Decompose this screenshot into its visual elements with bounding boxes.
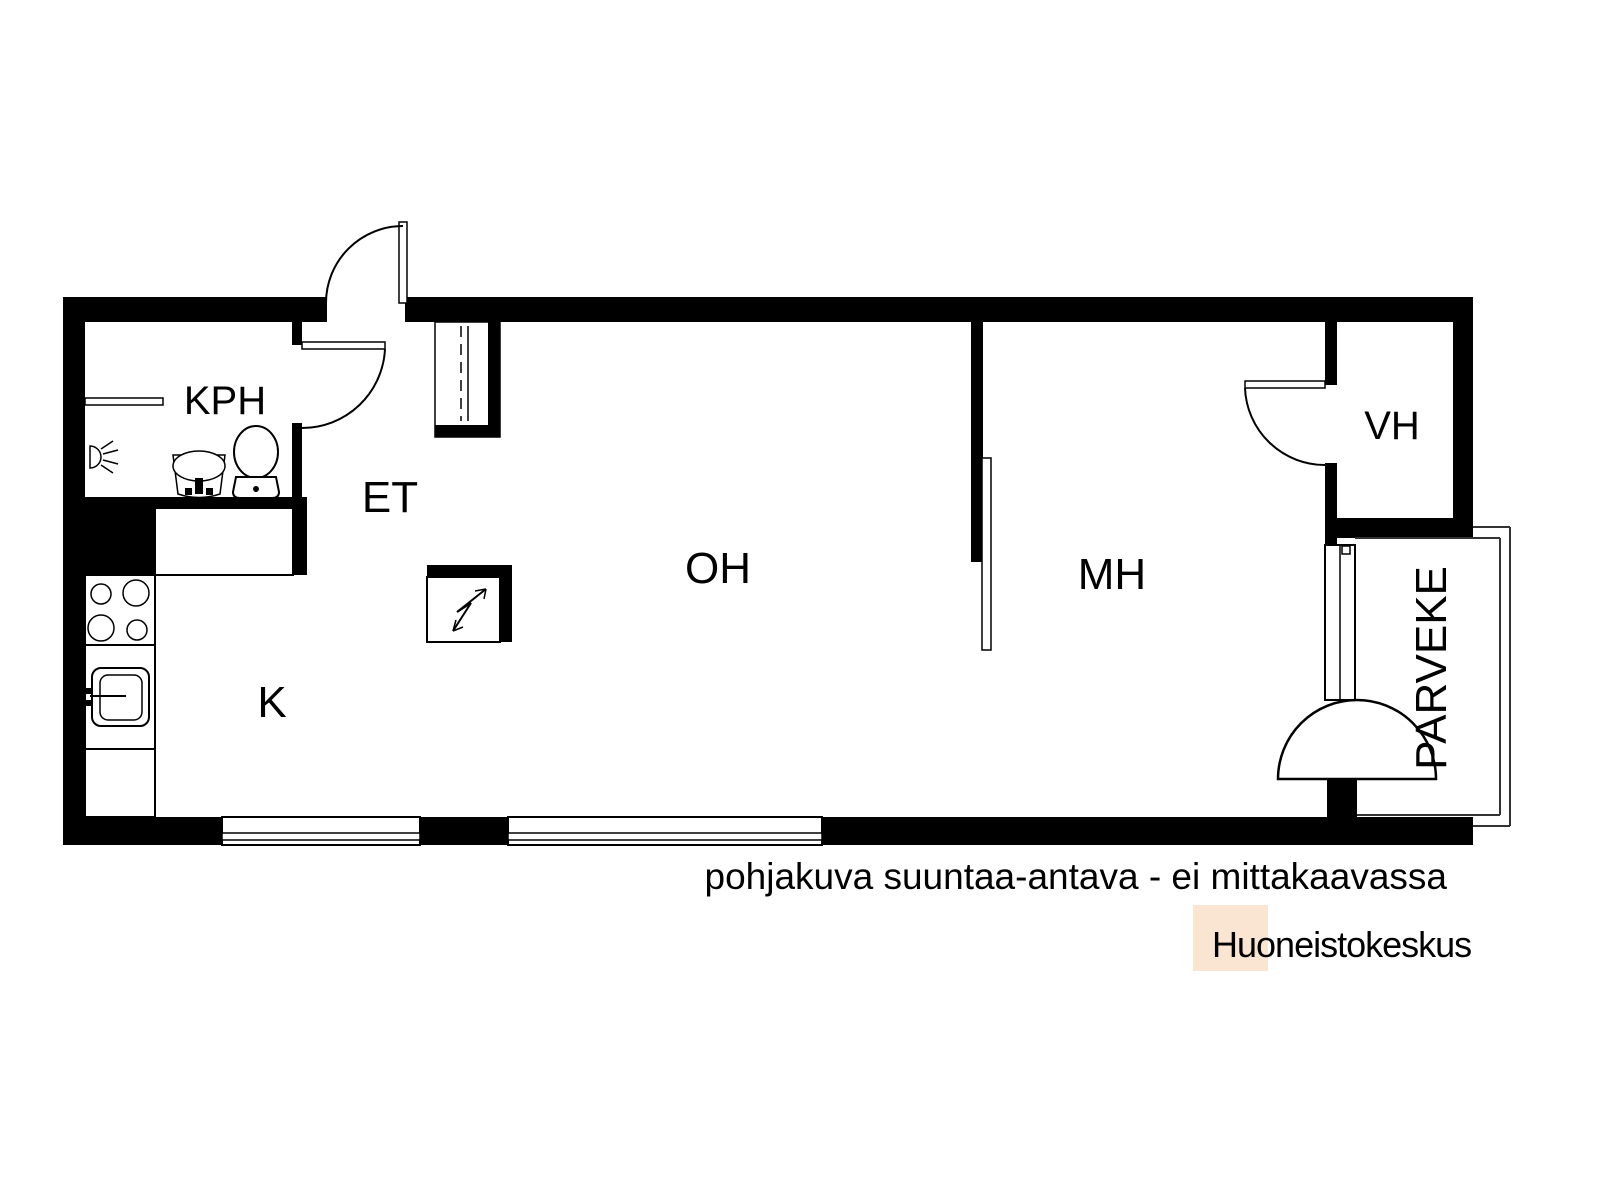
panel-box xyxy=(427,577,500,642)
door-leaf xyxy=(399,222,407,303)
door-swing-icon xyxy=(1245,388,1325,465)
faucet-knob xyxy=(86,688,93,694)
wall-kph-right-upper xyxy=(292,322,302,345)
wall-top-left xyxy=(63,297,327,322)
room-label-vh: VH xyxy=(1364,404,1420,448)
room-label-kph: KPH xyxy=(184,379,266,423)
wall-top-right xyxy=(405,297,1473,322)
kitchen-fixtures xyxy=(85,575,155,817)
door-leaf xyxy=(1245,381,1325,388)
faucet-knob xyxy=(86,700,93,706)
kitchen-sink-icon xyxy=(86,668,149,726)
room-label-oh: OH xyxy=(685,544,751,593)
basin-bowl xyxy=(173,451,225,481)
shower-spray xyxy=(101,441,118,473)
basin-knob xyxy=(206,488,213,495)
stove-icon xyxy=(85,575,155,645)
wall-kph-right-lower xyxy=(292,423,302,509)
door-swing-icon xyxy=(326,226,403,303)
shower-head xyxy=(90,446,101,468)
closet-door xyxy=(1245,381,1325,465)
window-icon xyxy=(508,817,822,845)
sliding-door-icon xyxy=(982,458,991,650)
toilet-bowl xyxy=(234,426,278,478)
towel-rail xyxy=(85,398,163,405)
window-glazing-line xyxy=(222,833,420,840)
wall-vh-bottom xyxy=(1325,518,1473,538)
panel-wall-right xyxy=(500,565,512,642)
wall-vh-left-upper xyxy=(1325,322,1337,385)
washbasin-icon xyxy=(173,451,225,498)
wardrobe-icon xyxy=(435,322,500,437)
windows xyxy=(222,817,822,845)
floor-plan-page: KPH ET OH K MH VH PARVEKE pohjakuva suun… xyxy=(0,0,1600,1200)
hall-cabinet xyxy=(155,508,293,575)
disclaimer-text: pohjakuva suuntaa-antava - ei mittakaava… xyxy=(705,856,1448,897)
basin-tap xyxy=(195,478,203,494)
toilet-icon xyxy=(233,426,279,498)
room-label-mh: MH xyxy=(1078,550,1146,599)
logo-text: Huoneistokeskus xyxy=(1212,924,1471,965)
wall-shaft-block xyxy=(63,508,155,575)
balcony-window xyxy=(1325,545,1355,700)
door-swing-icon xyxy=(302,349,385,428)
window-glazing-line xyxy=(508,833,822,840)
panel-wall-top xyxy=(427,565,512,577)
entrance-door xyxy=(326,222,407,303)
electrical-panel-icon xyxy=(427,565,512,642)
door-leaf xyxy=(302,342,385,349)
kitchen-counter xyxy=(85,749,155,817)
wardrobe-side-wall xyxy=(488,322,500,437)
wall-bottom-b xyxy=(420,817,508,845)
shower-icon xyxy=(90,441,118,473)
window-handle xyxy=(1342,546,1350,554)
toilet-button xyxy=(253,486,259,492)
window-icon xyxy=(222,817,420,845)
bathroom-door xyxy=(302,342,385,428)
wall-partition-oh-mh xyxy=(971,322,983,562)
room-label-et: ET xyxy=(362,473,418,522)
wall-bottom-c xyxy=(822,817,1473,845)
room-label-parveke: PARVEKE xyxy=(1407,566,1456,770)
wardrobe-end-wall xyxy=(435,425,500,437)
agency-logo: Huoneistokeskus xyxy=(1193,905,1471,971)
balcony xyxy=(1277,527,1510,826)
wall-bottom-a xyxy=(63,817,222,845)
floor-plan-drawing: KPH ET OH K MH VH PARVEKE pohjakuva suun… xyxy=(0,0,1600,1200)
wall-right xyxy=(1453,297,1473,538)
wall-balcony-door-post xyxy=(1327,779,1357,817)
wall-hall-closet-end xyxy=(293,508,307,575)
room-label-k: K xyxy=(257,678,286,727)
basin-knob xyxy=(185,488,192,495)
